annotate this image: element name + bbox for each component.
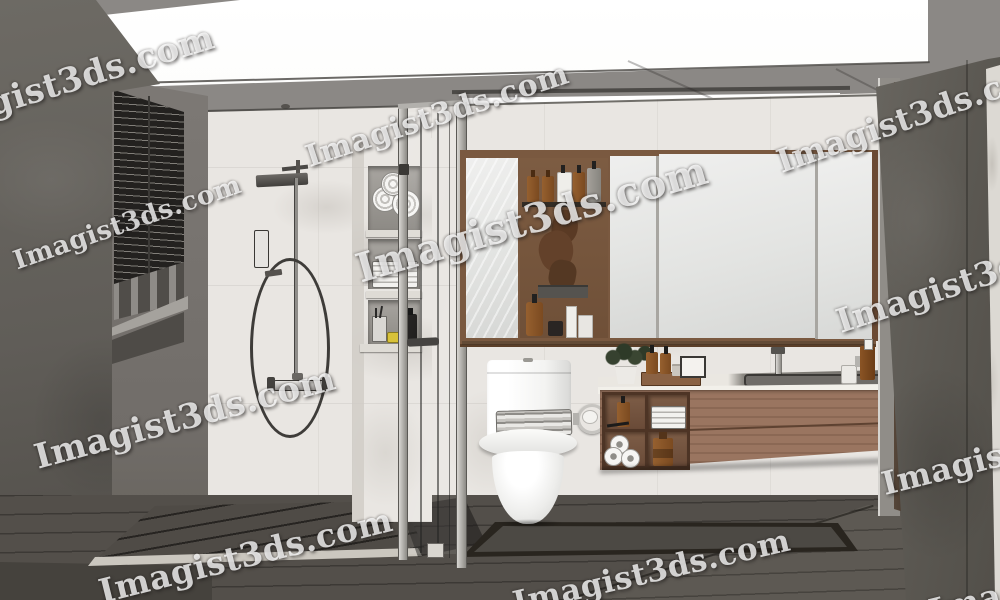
mirror-panel xyxy=(818,152,872,339)
pump-top xyxy=(532,294,537,303)
toilet-paper-roll xyxy=(582,410,598,424)
glass-edge xyxy=(420,115,422,553)
framed-box xyxy=(680,356,706,378)
niche-column-edge xyxy=(352,138,364,522)
white-cup xyxy=(841,365,857,384)
glass-edge xyxy=(449,112,450,558)
toothbrush-cup xyxy=(372,316,387,342)
jar-cap xyxy=(659,432,667,439)
glass-edge xyxy=(437,113,439,555)
white-cup xyxy=(578,315,593,338)
dark-jar xyxy=(548,321,563,336)
bottle-neck xyxy=(531,170,535,177)
pump-top xyxy=(621,396,625,403)
holder-arm xyxy=(573,413,579,425)
amber-bottle xyxy=(527,176,539,202)
bottle-neck xyxy=(546,170,550,177)
ceiling-light-panel xyxy=(95,0,928,90)
toilet-paper-roll xyxy=(621,449,640,468)
faucet-head xyxy=(771,347,785,354)
mirror-panel xyxy=(659,154,815,338)
cabinet-shadow xyxy=(462,341,874,345)
glass-foot-block xyxy=(427,543,444,558)
amber-spray-bottle xyxy=(860,346,875,380)
shower-valve-bar xyxy=(272,380,326,391)
gray-pump-bottle xyxy=(587,168,601,202)
led-recess-slot xyxy=(452,86,850,94)
toilet-shadow xyxy=(497,519,563,528)
shower-hose xyxy=(250,258,330,438)
pump-top xyxy=(561,165,565,173)
valve-diverter xyxy=(292,373,303,380)
tank-lid-line xyxy=(487,372,571,374)
jar-label xyxy=(653,449,673,458)
mirror-panel-left xyxy=(466,158,518,338)
pump-top xyxy=(592,161,596,169)
valve-handle-left xyxy=(267,377,275,391)
glass-door-handle xyxy=(407,337,439,347)
hand-shower xyxy=(254,230,269,268)
sculpture-base xyxy=(538,285,588,298)
mirror-panel xyxy=(610,156,656,338)
pump-top xyxy=(650,345,654,353)
amber-pump-bottle xyxy=(526,302,543,336)
right-wall-seam xyxy=(966,60,968,600)
valve-handle-right xyxy=(322,377,330,391)
white-tube xyxy=(566,306,577,338)
white-pump-bottle xyxy=(557,172,572,204)
glass-frame-post-back xyxy=(398,108,408,560)
flush-button xyxy=(523,358,533,362)
folded-towels xyxy=(651,406,686,429)
amber-bottle xyxy=(542,176,554,202)
glass-clamp xyxy=(399,164,409,175)
amber-pump-bottle xyxy=(573,172,585,202)
faucet xyxy=(776,352,781,374)
amber-pump-bottle xyxy=(646,352,658,374)
spray-top xyxy=(864,339,873,350)
pump-top xyxy=(664,346,668,354)
bathroom-3d-render: Imagist3ds.com Imagist3ds.com Imagist3ds… xyxy=(0,0,1000,600)
toothbrush xyxy=(375,308,377,318)
niche-shelf-board xyxy=(522,202,606,207)
amber-pump-bottle xyxy=(660,353,671,374)
pump-top xyxy=(577,165,581,173)
blind-cord xyxy=(148,96,150,278)
